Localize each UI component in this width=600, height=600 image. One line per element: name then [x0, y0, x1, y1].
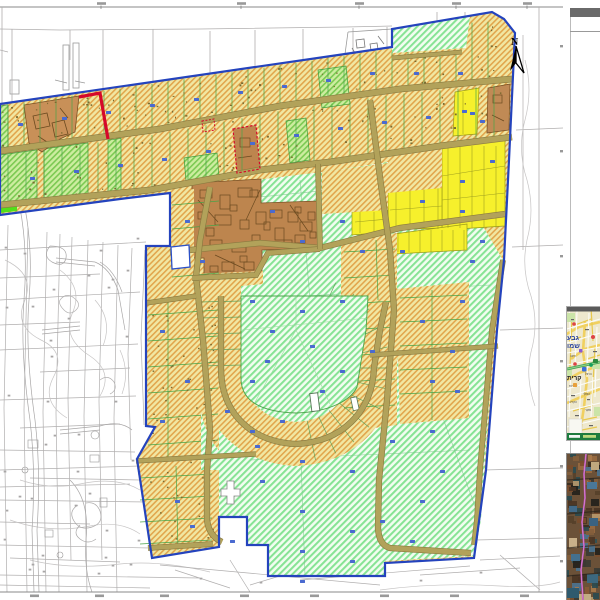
svg-text:N: N [511, 37, 519, 48]
